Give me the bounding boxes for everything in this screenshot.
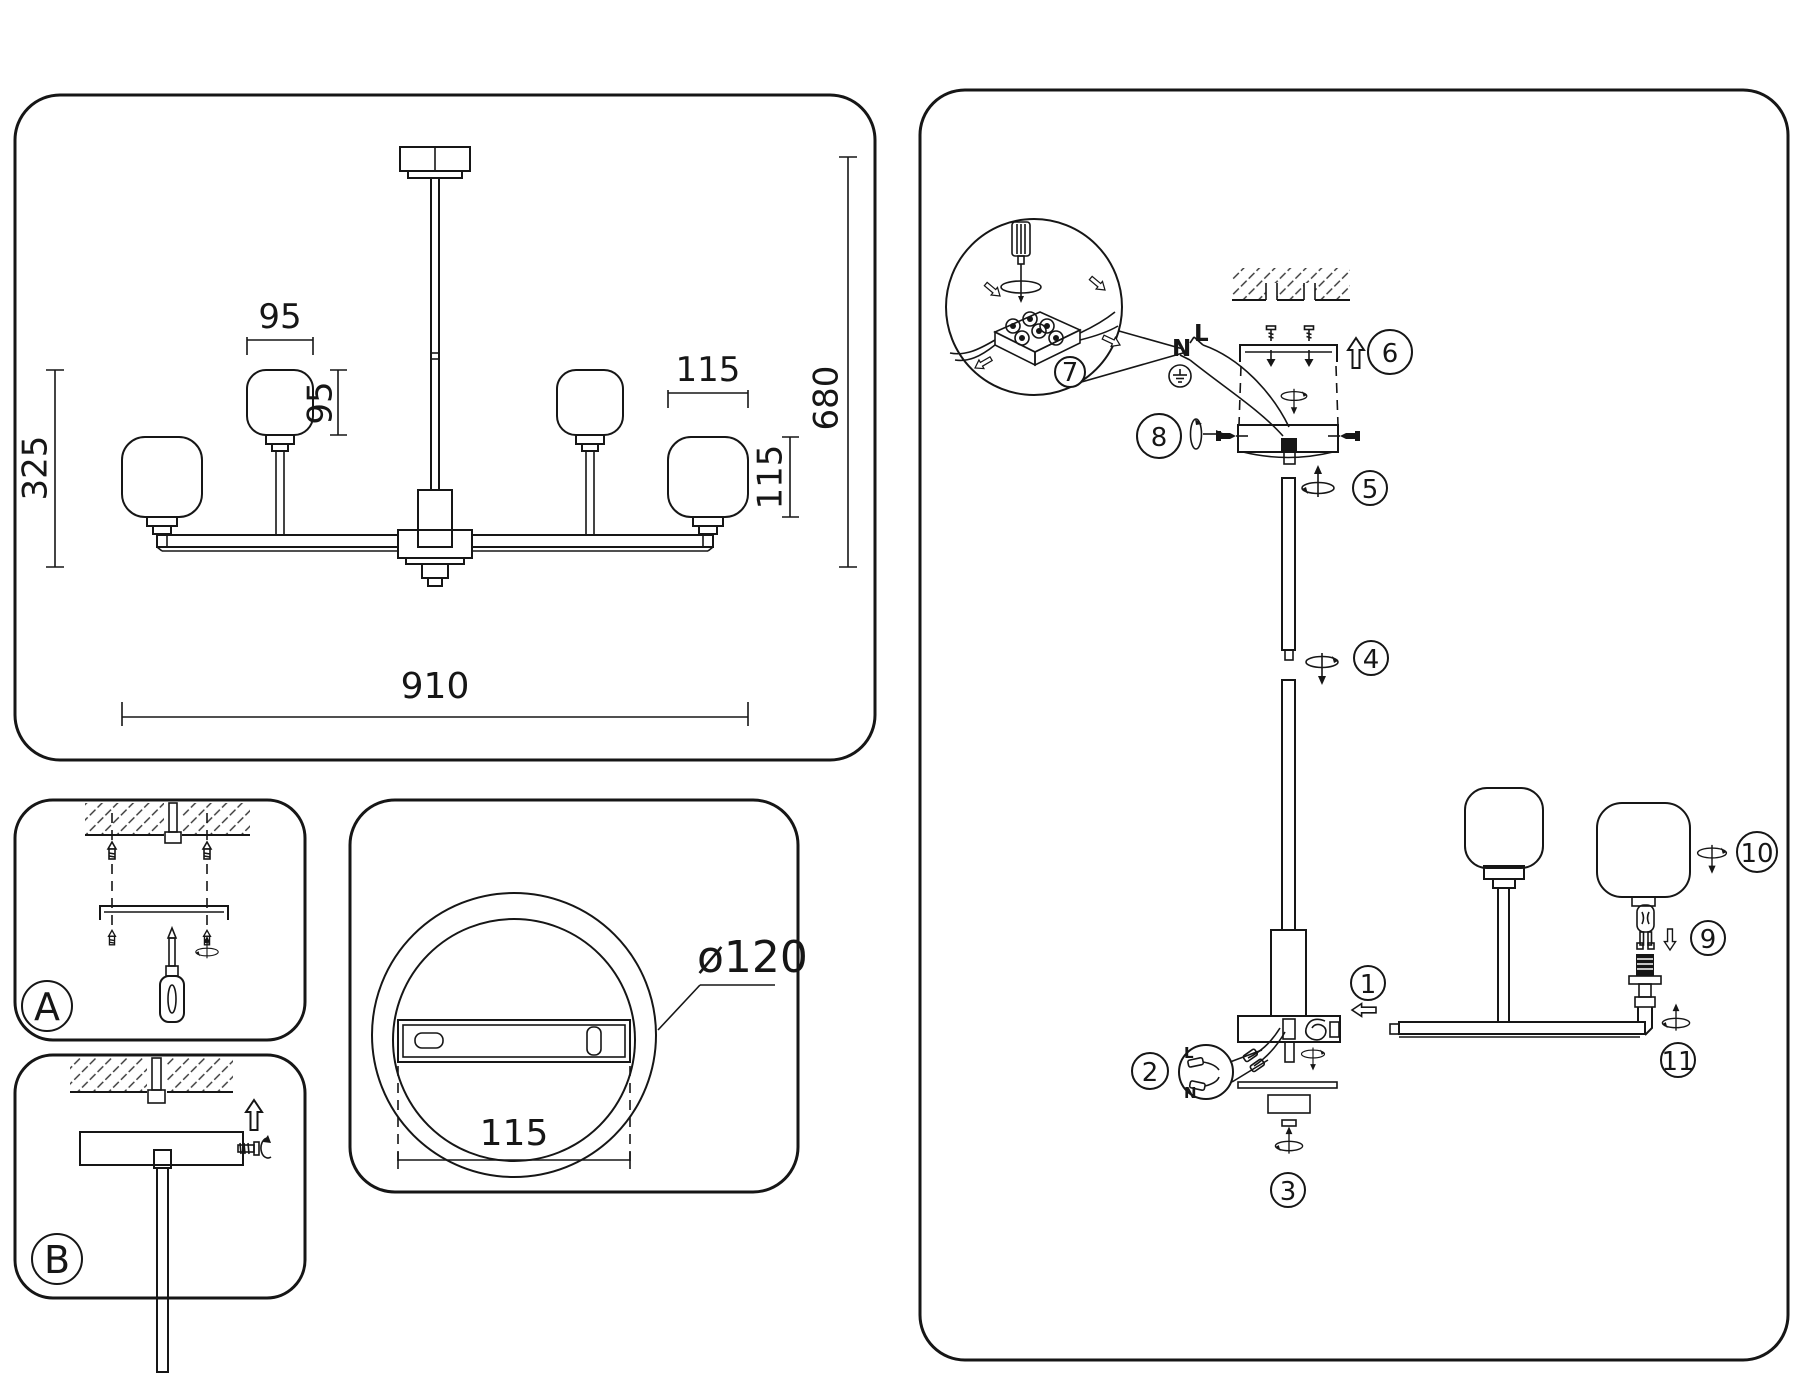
step5-number: 5 [1362,475,1379,505]
instruction-sheet: 95 95 115 115 325 680 910 [0,0,1800,1400]
lamp-stem [1498,888,1509,1022]
dim-label-115h: 115 [751,445,791,510]
rotate-icon [196,936,218,958]
panel-border [15,95,875,760]
spare-shade [1597,803,1690,897]
step4-rod-joint: 4 [1282,641,1388,930]
panel-border [920,90,1788,1360]
panel-dimension-drawing: 95 95 115 115 325 680 910 [15,95,875,760]
dim-overall-width: 910 [122,666,748,726]
lamp-shade [1465,788,1543,868]
wall-anchor-icon [108,842,116,859]
connector-neutral-label: N [1184,1084,1197,1102]
dim-large-shade-height: 115 [751,437,800,517]
panel-assembly-steps: 6 7 [920,90,1788,1360]
wire-live [1203,345,1289,427]
arm-bar [1399,1022,1645,1034]
screw-icon [109,930,116,944]
step3-number: 3 [1280,1177,1297,1207]
step9-number: 9 [1700,925,1717,955]
connector-live-label: L [1184,1044,1194,1062]
terminal-screws [1006,312,1063,345]
panel-canopy-detail: 115 ø120 [350,800,808,1192]
dim-label-325: 325 [16,436,56,501]
rod-lower [1282,680,1295,930]
hanging-rod [157,1168,168,1372]
dim-small-shade-width: 95 [247,297,313,355]
step11-number: 11 [1661,1047,1694,1077]
dim-drop-height: 325 [16,370,65,567]
mounting-bracket [100,906,228,920]
step7-terminal-detail: 7 [946,219,1183,395]
panel-mounting-b: B [15,1055,305,1372]
coiled-wire [1306,1019,1326,1040]
dim-label-diameter: ø120 [697,932,808,983]
dim-overall-height: 680 [807,157,858,567]
panel-mounting-a: A [15,800,305,1040]
step2-number: 2 [1142,1058,1159,1088]
step7-number: 7 [1062,358,1079,388]
dim-large-shade-width: 115 [668,350,748,408]
mounting-plate [80,1132,243,1165]
earth-symbol-icon [1169,365,1191,387]
dim-label-95h: 95 [301,381,341,424]
step6-number: 6 [1382,339,1399,369]
panel-border [350,800,798,1192]
step6-bracket: 6 [1240,326,1412,374]
step9-bulb: 9 [1637,905,1725,955]
method-a-label: A [34,985,60,1029]
step1-number: 1 [1360,970,1377,1000]
step4-number: 4 [1363,645,1380,675]
step3-bottom-cover: 3 [1238,1082,1337,1207]
chandelier-side-view [122,147,748,586]
step10-shade: 10 [1597,803,1777,906]
central-hub [1238,930,1340,1072]
step10-number: 10 [1740,839,1773,869]
dim-label-115w: 115 [676,350,741,390]
step8-number: 8 [1151,423,1168,453]
wire-neutral-label: N [1172,336,1191,362]
g9-bulb-icon [1637,905,1654,932]
dim-label-910: 910 [401,666,470,707]
dim-small-shade-height: 95 [301,370,348,435]
wall-anchor-icon [203,842,211,859]
screwdriver-icon [160,928,184,1022]
method-b-label: B [44,1238,70,1282]
ceiling-hatch-assembly [1232,268,1350,300]
diagram-svg: 95 95 115 115 325 680 910 [0,0,1800,1400]
dim-label-680: 680 [807,366,847,431]
arrow-up-icon [246,1100,262,1130]
step1-arm: 1 [1351,788,1652,1037]
dim-label-95w: 95 [258,297,301,337]
rod-upper [1282,478,1295,650]
dim-label-hole-spacing: 115 [480,1113,549,1154]
step5-upper-rod: 5 [1282,465,1387,660]
